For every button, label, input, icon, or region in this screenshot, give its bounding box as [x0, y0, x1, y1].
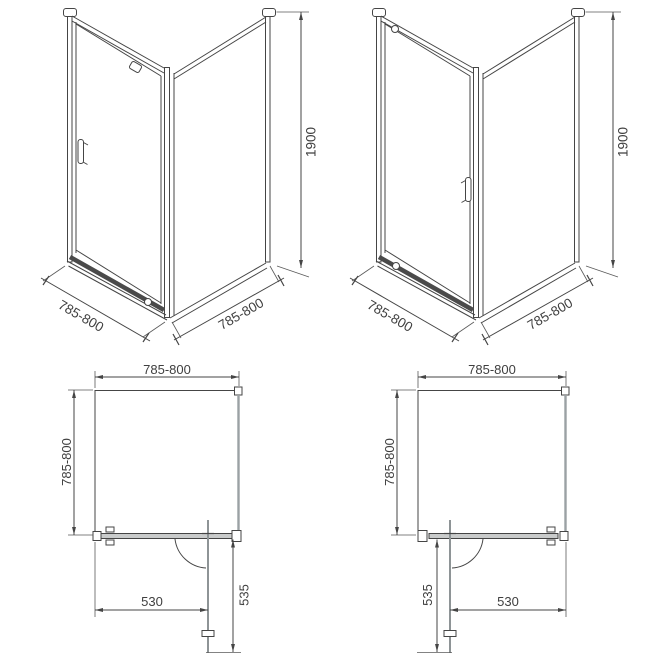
plan-door-closed: [101, 534, 232, 539]
door-handle: [444, 631, 456, 637]
door-handle: [78, 140, 84, 164]
door-handle: [466, 178, 472, 202]
dim-line-panel-width: [483, 278, 593, 340]
side-panel-top-rail: [174, 17, 266, 79]
plan-door-closed: [429, 534, 558, 539]
wall-profile-cap: [560, 532, 568, 541]
corner-post: [165, 68, 170, 318]
technical-drawing-canvas: 1900 785-800 785-800 1900 785: [0, 0, 665, 665]
pivot-hinge-top: [392, 26, 399, 33]
pivot-hinge-bottom: [393, 263, 400, 270]
door-handle: [202, 631, 214, 637]
plan-view-right-hinge: 785-800 785-800 530 535: [382, 362, 569, 653]
post-top-cap: [263, 9, 276, 17]
iso-view-right-hinge: 1900 785-800 785-800: [350, 9, 631, 346]
shower-enclosure-diagram: 1900 785-800 785-800 1900 785: [0, 0, 665, 665]
dim-label-height: 1900: [304, 127, 319, 157]
dim-label-panel-width: 785-800: [525, 295, 575, 333]
side-panel-right-post: [575, 15, 580, 262]
side-panel-top-rail: [483, 17, 575, 79]
wall-bracket: [106, 540, 114, 545]
dim-label-door-width: 785-800: [365, 297, 415, 335]
dim-label-height: 1900: [616, 127, 631, 157]
dim-label-entry: 530: [141, 594, 163, 609]
wall-bracket: [547, 540, 555, 545]
post-top-cap: [64, 9, 77, 17]
iso-view-left-hinge: 1900 785-800 785-800: [41, 9, 319, 346]
wall-profile-block: [235, 387, 243, 395]
side-panel-right-post: [266, 15, 271, 262]
pivot-hinge-top: [129, 61, 143, 73]
post-top-cap: [572, 9, 585, 17]
dim-label-entry: 530: [497, 594, 519, 609]
dim-ticks: [173, 275, 284, 345]
door-left-post: [377, 15, 382, 262]
dim-label-extension: 535: [237, 584, 252, 606]
dim-label-extension: 535: [420, 584, 435, 606]
dim-label-depth: 785-800: [382, 438, 397, 486]
door-swing-arc: [452, 539, 483, 568]
dim-ticks: [482, 275, 593, 345]
door-top-rail: [381, 16, 473, 73]
dim-line-panel-width: [174, 278, 284, 340]
dim-label-depth: 785-800: [59, 438, 74, 486]
wall-bracket: [547, 527, 555, 532]
post-top-cap: [373, 9, 386, 17]
dim-label-width: 785-800: [143, 362, 191, 377]
door-swing-arc: [175, 539, 206, 568]
corner-bracket: [418, 531, 427, 542]
door-top-rail: [72, 16, 164, 73]
wall-profile-cap: [93, 532, 101, 541]
dim-label-panel-width: 785-800: [216, 295, 266, 333]
dim-label-width: 785-800: [468, 362, 516, 377]
dim-label-door-width: 785-800: [56, 297, 106, 335]
wall-profile-block: [562, 387, 570, 395]
wall-bracket: [106, 527, 114, 532]
plan-view-left-hinge: 785-800 785-800 530 535: [59, 362, 252, 653]
door-left-post: [68, 15, 73, 262]
pivot-hinge-bottom: [145, 299, 152, 306]
corner-post: [474, 68, 479, 318]
